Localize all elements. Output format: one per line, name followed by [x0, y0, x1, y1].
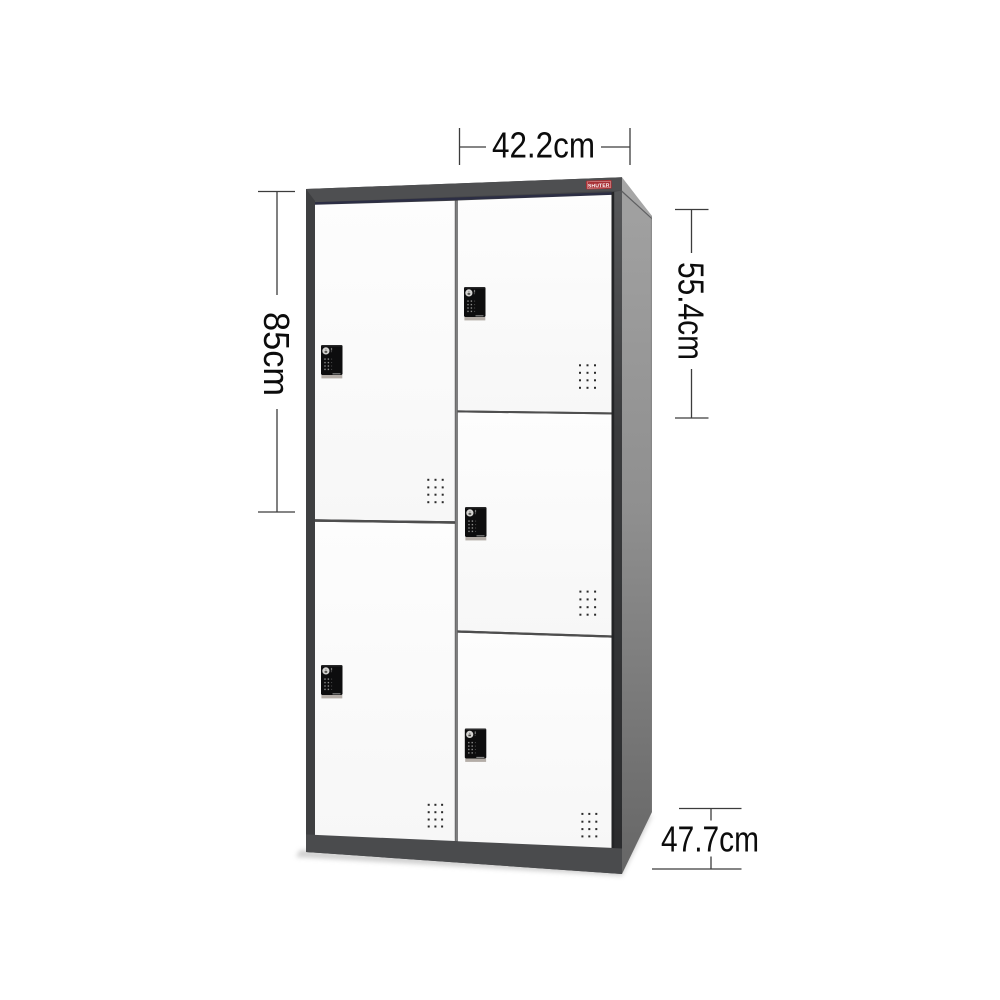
svg-text:SHUTER: SHUTER: [588, 183, 610, 190]
svg-text:85cm: 85cm: [256, 312, 297, 396]
svg-text:42.2cm: 42.2cm: [492, 125, 595, 166]
svg-text:47.7cm: 47.7cm: [661, 818, 759, 859]
svg-text:55.4cm: 55.4cm: [671, 262, 712, 360]
